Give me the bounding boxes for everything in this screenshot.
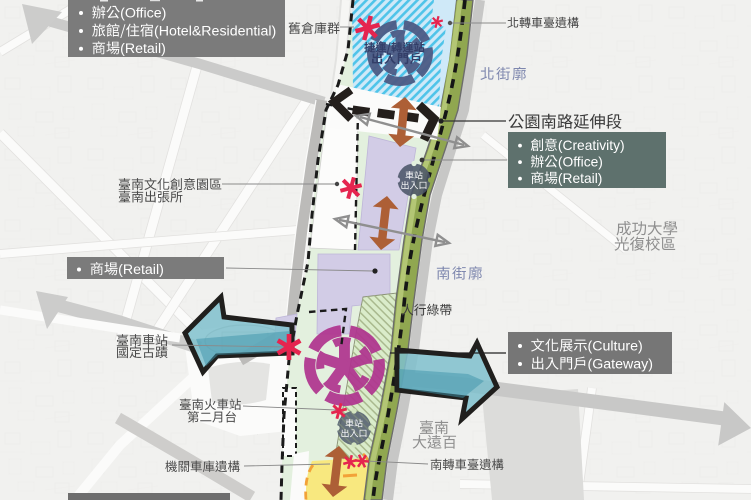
svg-text:(Office): (Office) — [120, 6, 166, 22]
svg-text:(Retail): (Retail) — [118, 262, 164, 278]
svg-text:(Retail): (Retail) — [558, 171, 602, 186]
svg-text:(Creativity): (Creativity) — [558, 138, 625, 153]
svg-text:(Hotel&Residential): (Hotel&Residential) — [154, 24, 276, 40]
svg-text:(Office): (Office) — [558, 155, 603, 170]
svg-text:(Culture): (Culture) — [588, 339, 643, 355]
svg-text:(Retail): (Retail) — [120, 41, 166, 57]
svg-text:(Gateway): (Gateway) — [588, 357, 653, 373]
